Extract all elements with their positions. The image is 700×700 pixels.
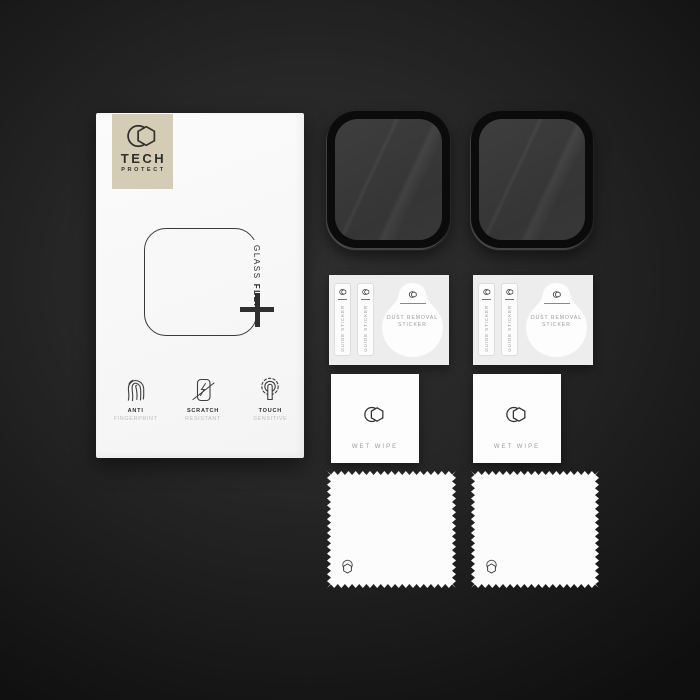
- techprotect-logo-icon: [339, 559, 356, 575]
- techprotect-logo-icon: [483, 288, 491, 296]
- feature-title: ANTI: [128, 408, 144, 414]
- techprotect-logo-icon: [483, 559, 500, 575]
- feature-list: ANTI FINGERPRINT SCRATCH RESISTANT TOU: [102, 376, 304, 434]
- brand-subname: PROTECT: [121, 167, 165, 173]
- sticker-sheet-2: GUIDE STICKER GUIDE STICKER DUST REMOVAL…: [473, 275, 593, 365]
- techprotect-logo-icon: [125, 122, 161, 150]
- feature-anti-fingerprint: ANTI FINGERPRINT: [106, 376, 166, 422]
- wet-wipe-2: WET WIPE: [473, 374, 561, 463]
- product-showcase: TECH PROTECT GLASSFLEX ANTI FINGERPRINT: [0, 0, 700, 700]
- guide-sticker-label: GUIDE STICKER: [484, 305, 489, 352]
- watch-screen-outline: [144, 228, 257, 336]
- protector-glass: [479, 119, 585, 240]
- fingerprint-icon: [120, 374, 152, 406]
- microfiber-cloth-2: [471, 471, 599, 588]
- touch-icon: [256, 376, 284, 404]
- wet-wipe-label: WET WIPE: [352, 444, 398, 450]
- techprotect-logo-icon: [552, 290, 562, 299]
- screen-protector-1: [327, 111, 450, 248]
- feature-touch-sensitive: TOUCH SENSITIVE: [240, 376, 300, 422]
- brand-name: TECH: [121, 151, 166, 166]
- feature-title: SCRATCH: [187, 408, 219, 414]
- screen-protector-2: [471, 111, 593, 248]
- guide-sticker-label: GUIDE STICKER: [340, 305, 345, 352]
- feature-scratch-resistant: SCRATCH RESISTANT: [173, 376, 233, 422]
- scratch-icon: [189, 376, 217, 404]
- techprotect-logo-icon: [506, 288, 514, 296]
- dust-removal-label: DUST REMOVALSTICKER: [387, 315, 438, 329]
- divider: [338, 299, 347, 300]
- guide-sticker-label: GUIDE STICKER: [507, 305, 512, 352]
- dust-removal-sticker: DUST REMOVALSTICKER: [525, 282, 588, 358]
- feature-title: TOUCH: [259, 408, 282, 414]
- protector-glass: [335, 119, 442, 240]
- guide-sticker-strip: GUIDE STICKER: [501, 283, 518, 356]
- dust-removal-sticker: DUST REMOVALSTICKER: [381, 282, 444, 358]
- sticker-sheet-1: GUIDE STICKER GUIDE STICKER DUST REMOVAL…: [329, 275, 449, 365]
- guide-sticker-strip: GUIDE STICKER: [478, 283, 495, 356]
- divider: [400, 303, 426, 304]
- divider: [544, 303, 570, 304]
- techprotect-logo-icon: [363, 404, 387, 425]
- retail-box: TECH PROTECT GLASSFLEX ANTI FINGERPRINT: [96, 113, 304, 458]
- techprotect-logo-icon: [339, 288, 347, 296]
- product-name-glass: GLASS: [252, 245, 261, 280]
- wet-wipe-1: WET WIPE: [331, 374, 419, 463]
- divider: [361, 299, 370, 300]
- techprotect-logo-icon: [408, 290, 418, 299]
- wet-wipe-label: WET WIPE: [494, 444, 540, 450]
- guide-sticker-label: GUIDE STICKER: [363, 305, 368, 352]
- divider: [482, 299, 491, 300]
- brand-badge: TECH PROTECT: [112, 114, 173, 189]
- guide-sticker-strip: GUIDE STICKER: [334, 283, 351, 356]
- feature-subtitle: RESISTANT: [185, 416, 221, 422]
- feature-subtitle: SENSITIVE: [253, 416, 287, 422]
- feature-subtitle: FINGERPRINT: [114, 416, 158, 422]
- techprotect-logo-icon: [362, 288, 370, 296]
- divider: [505, 299, 514, 300]
- techprotect-logo-icon: [505, 404, 529, 425]
- guide-sticker-strip: GUIDE STICKER: [357, 283, 374, 356]
- dust-removal-label: DUST REMOVALSTICKER: [531, 315, 582, 329]
- microfiber-cloth-1: [327, 471, 456, 588]
